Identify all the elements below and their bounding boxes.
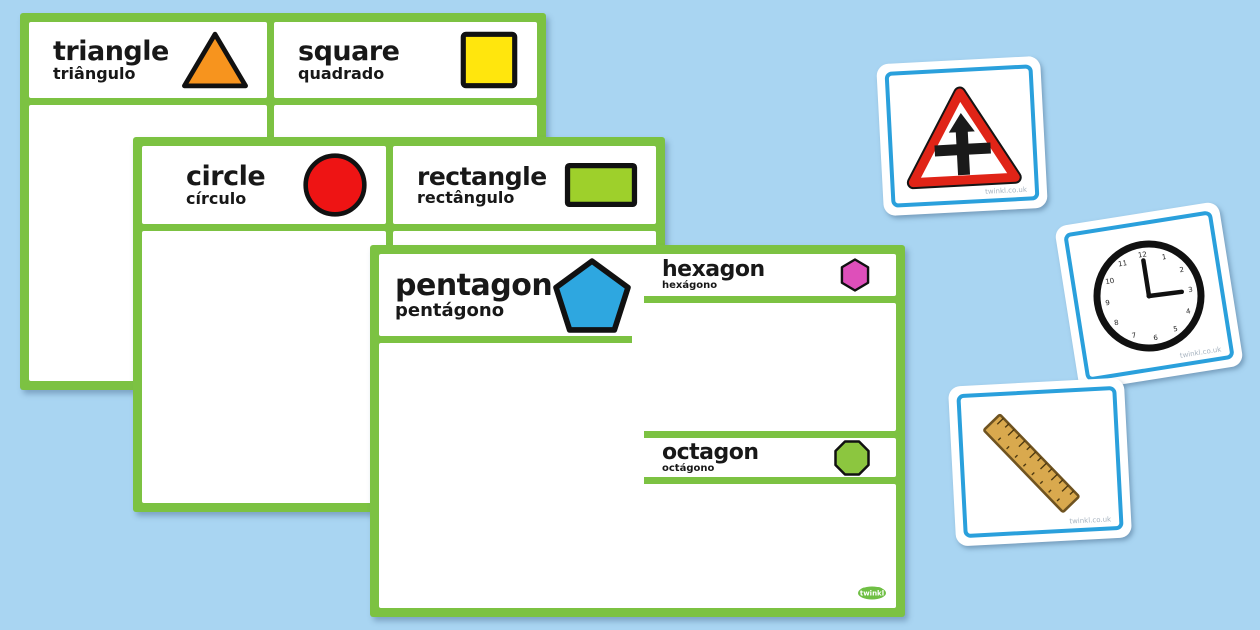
pentagon-label-pt: pentágono <box>395 302 552 320</box>
card-frame: twinkl.co.uk <box>885 64 1040 208</box>
hexagon-header-cell: hexagon hexágono <box>632 254 896 296</box>
square-header-cell: square quadrado <box>274 22 537 98</box>
hexagon-label-en: hexagon <box>662 259 765 281</box>
picture-card-road-sign[interactable]: twinkl.co.uk <box>876 56 1048 216</box>
svg-text:12: 12 <box>1137 250 1147 259</box>
octagon-label-pt: octágono <box>662 464 759 474</box>
triangle-label-pt: triângulo <box>53 66 169 82</box>
pentagon-label-en: pentagon <box>395 271 552 301</box>
hexagon-icon <box>840 258 870 292</box>
square-label-en: square <box>298 38 399 65</box>
twinkl-logo-icon: twinkl <box>856 584 888 602</box>
triangle-icon <box>181 30 249 90</box>
card-watermark: twinkl.co.uk <box>985 186 1027 196</box>
circle-label-pt: círculo <box>186 191 265 207</box>
hexagon-label-pt: hexágono <box>662 281 765 291</box>
worksheet-scene: triangle triângulo square quadrado <box>0 0 1260 630</box>
octagon-sorting-area: twinkl <box>632 484 896 608</box>
svg-text:11: 11 <box>1118 259 1128 268</box>
circle-header-cell: circle círculo <box>142 146 386 224</box>
picture-card-ruler[interactable]: twinkl.co.uk <box>948 378 1132 547</box>
sorting-mat-pentagon-hexagon-octagon: pentagon pentágono hexagon hexágono <box>370 245 905 617</box>
analogue-clock-icon: 121234567891011 <box>1078 225 1220 367</box>
octagon-label-en: octagon <box>662 442 759 464</box>
triangle-label-en: triangle <box>53 38 169 65</box>
square-icon <box>459 30 519 90</box>
crossroads-warning-sign-icon <box>898 78 1026 194</box>
svg-text:10: 10 <box>1105 277 1115 286</box>
circle-label-en: circle <box>186 163 265 190</box>
rectangle-label-en: rectangle <box>417 164 547 189</box>
card-frame: twinkl.co.uk <box>956 386 1123 538</box>
pentagon-header-cell: pentagon pentágono <box>379 254 644 336</box>
circle-icon <box>302 152 368 218</box>
hexagon-sorting-area <box>632 303 896 431</box>
pentagon-icon <box>552 257 632 334</box>
circle-sorting-area <box>142 231 386 503</box>
rectangle-label-pt: rectângulo <box>417 190 547 206</box>
octagon-icon <box>834 440 870 476</box>
card-frame: 121234567891011 twinkl.co.uk <box>1063 210 1235 382</box>
rectangle-header-cell: rectangle rectângulo <box>393 146 656 224</box>
rectangle-icon <box>564 162 638 208</box>
triangle-header-cell: triangle triângulo <box>29 22 267 98</box>
octagon-header-cell: octagon octágono <box>632 438 896 477</box>
square-label-pt: quadrado <box>298 66 399 82</box>
picture-card-clock[interactable]: 121234567891011 twinkl.co.uk <box>1054 201 1244 391</box>
twinkl-logo-text: twinkl <box>860 590 884 598</box>
pentagon-sorting-area <box>379 343 644 608</box>
